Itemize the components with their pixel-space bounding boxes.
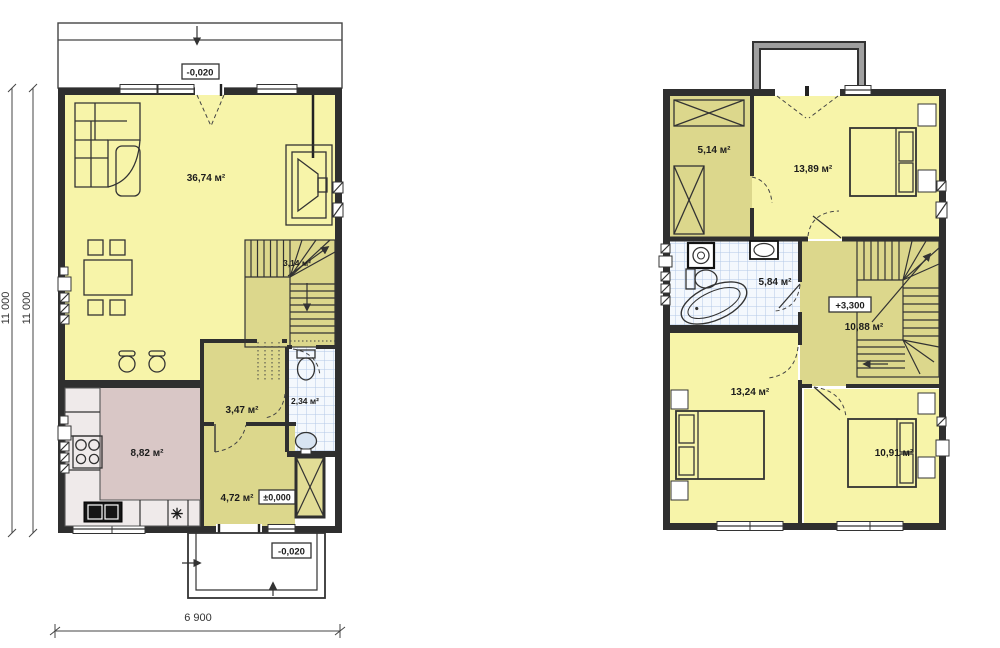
storage-area-label: 3,47 м² xyxy=(226,405,260,416)
nightstand-icon xyxy=(918,457,935,478)
entry-level-label: ±0,000 xyxy=(263,493,290,503)
dimension-height: 11 000 11 000 xyxy=(0,84,37,537)
bedroom-right-area-label: 10,91 м² xyxy=(875,448,914,459)
terrace-door-opening xyxy=(195,84,224,95)
porch-level-label: -0,020 xyxy=(278,547,305,558)
wc-area-label: 2,34 м² xyxy=(291,396,319,406)
hall-area-label: 10,88 м² xyxy=(845,322,884,333)
washing-machine-icon xyxy=(688,243,714,268)
bath-sink-icon xyxy=(750,241,778,259)
hallway-area-label: 4,72 м² xyxy=(221,493,255,504)
wardrobe-area-label: 5,14 м² xyxy=(698,145,732,156)
landing-level-label: +3,300 xyxy=(835,301,864,312)
bedroom-large-floor xyxy=(752,96,939,239)
bedroom-left-area-label: 13,24 м² xyxy=(731,387,770,398)
porch: -0,020 xyxy=(182,533,325,598)
living-area-label: 36,74 м² xyxy=(187,173,226,184)
dimension-width: 6 900 xyxy=(50,612,345,638)
kitchen-sink-icon xyxy=(84,502,122,522)
nightstand-icon xyxy=(671,390,688,409)
hallway-floor xyxy=(202,424,295,526)
floorplan-canvas: -0,020 xyxy=(0,0,1000,648)
closet-icon xyxy=(296,457,324,517)
nightstand-icon xyxy=(918,393,935,414)
wall-panel-icons xyxy=(659,244,672,305)
freezer-icon: ✳ xyxy=(171,506,184,523)
dim-height-outer-label: 11 000 xyxy=(0,292,12,325)
floor1-plan: -0,020 xyxy=(0,23,345,638)
nightstand-icon xyxy=(918,104,936,126)
bathroom-area-label: 5,84 м² xyxy=(759,277,793,288)
bedroom-left-floor xyxy=(670,333,798,523)
nightstand-icon xyxy=(918,170,936,192)
floor2-plan: +3,300 5,14 м² 13,89 м² 5,84 м² 10,88 м²… xyxy=(659,46,949,531)
dim-height-inner-label: 11 000 xyxy=(21,292,33,325)
bedroom-large-area-label: 13,89 м² xyxy=(794,164,833,175)
floorplan-drawing: -0,020 xyxy=(0,0,1000,648)
kitchen-area-label: 8,82 м² xyxy=(131,448,165,459)
wardrobe-floor xyxy=(670,96,752,239)
stairwell-area-label: 3,14 м² xyxy=(283,258,311,268)
nightstand-icon xyxy=(671,481,688,500)
terrace-level-label: -0,020 xyxy=(187,68,214,79)
dim-width-label: 6 900 xyxy=(184,612,212,624)
terrace: -0,020 xyxy=(58,23,342,88)
